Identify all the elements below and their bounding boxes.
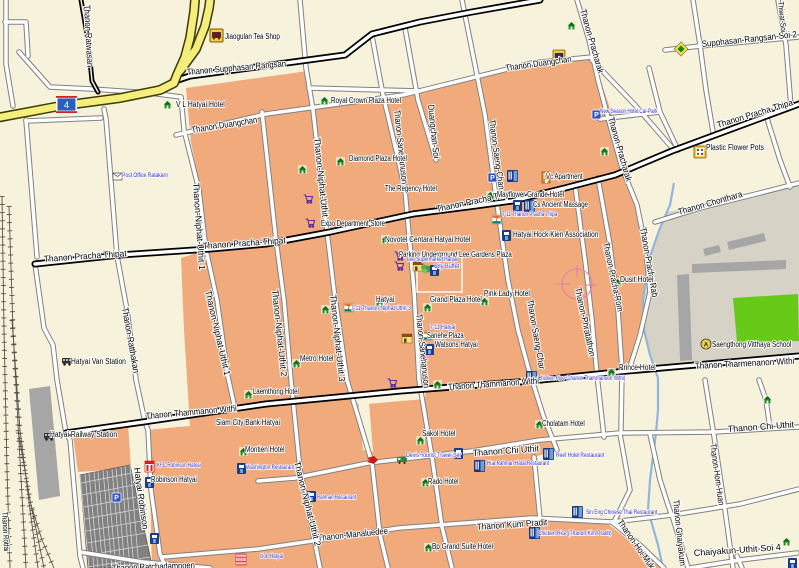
svg-text:City Buffet: City Buffet bbox=[434, 263, 459, 270]
svg-text:Sakol Hotel: Sakol Hotel bbox=[422, 429, 456, 438]
svg-text:4: 4 bbox=[64, 100, 69, 111]
svg-text:7: 7 bbox=[495, 217, 498, 223]
svg-text:Saengthong Vitthaya School: Saengthong Vitthaya School bbox=[712, 340, 791, 349]
svg-text:Hatyai: Hatyai bbox=[376, 295, 394, 304]
svg-text:Jiaogulan Tea Shop: Jiaogulan Tea Shop bbox=[225, 32, 280, 41]
svg-text:Hatyai Hock Kien Association: Hatyai Hock Kien Association bbox=[513, 230, 598, 239]
svg-text:7-11 Thanon Niphat Uthit 3: 7-11 Thanon Niphat Uthit 3 bbox=[351, 305, 411, 312]
svg-text:Bp Grand Suite Hotel: Bp Grand Suite Hotel bbox=[432, 542, 493, 551]
svg-text:Lee Supermarket Hatyai: Lee Supermarket Hatyai bbox=[407, 256, 458, 263]
svg-text:Hua Rahman Hatal Restaurant: Hua Rahman Hatal Restaurant bbox=[487, 460, 549, 467]
svg-text:Cs Ancient Massage: Cs Ancient Massage bbox=[533, 200, 588, 209]
svg-text:Rahman Restaurant: Rahman Restaurant bbox=[317, 494, 356, 501]
svg-text:Montien Hotel: Montien Hotel bbox=[245, 445, 285, 454]
svg-text:Grand Plaza Hotel: Grand Plaza Hotel bbox=[430, 295, 482, 304]
svg-text:Rado Hotel: Rado Hotel bbox=[428, 477, 459, 486]
svg-text:The Regency Hotel: The Regency Hotel bbox=[385, 184, 437, 193]
svg-text:Chicken Rice (Thanon Kim Pradi: Chicken Rice (Thanon Kim Pradit) bbox=[538, 530, 612, 537]
svg-text:KFC Robinson Hatyai: KFC Robinson Hatyai bbox=[157, 462, 201, 469]
svg-text:Cholatam Hotel: Cholatam Hotel bbox=[542, 419, 585, 428]
svg-text:Mayflower Grande Hotel: Mayflower Grande Hotel bbox=[497, 190, 564, 199]
svg-text:Pink Lady Hotel: Pink Lady Hotel bbox=[484, 289, 530, 298]
svg-text:P: P bbox=[594, 112, 599, 119]
svg-text:7-11 Hatyai: 7-11 Hatyai bbox=[430, 324, 455, 331]
svg-text:Robinson Hatyai: Robinson Hatyai bbox=[151, 475, 197, 484]
svg-text:Metro Hotel: Metro Hotel bbox=[300, 354, 334, 363]
svg-text:Uob Hatyai: Uob Hatyai bbox=[260, 553, 283, 560]
svg-text:Dusit Hotel: Dusit Hotel bbox=[620, 275, 654, 284]
svg-text:New Season Hotel Car Park: New Season Hotel Car Park bbox=[600, 108, 658, 115]
svg-text:7-11 Thanon Pracha Thipa: 7-11 Thanon Pracha Thipa bbox=[502, 211, 557, 218]
svg-text:A: A bbox=[704, 343, 709, 349]
svg-text:Vc Apartment: Vc Apartment bbox=[546, 172, 583, 181]
svg-text:Watsons Hatyai: Watsons Hatyai bbox=[435, 340, 478, 349]
svg-text:Sin Eng Chinese Thai Restauran: Sin Eng Chinese Thai Restaurant bbox=[586, 509, 657, 516]
svg-text:Post Office Ratakarn: Post Office Ratakarn bbox=[122, 172, 168, 179]
svg-text:P: P bbox=[490, 175, 495, 182]
svg-text:Sanehe Plaza: Sanehe Plaza bbox=[427, 331, 464, 340]
svg-text:Laemthong Hotel: Laemthong Hotel bbox=[253, 387, 299, 396]
svg-text:V L Hatyai Hotel: V L Hatyai Hotel bbox=[176, 100, 225, 109]
svg-text:Prince Hotel: Prince Hotel bbox=[619, 363, 656, 372]
svg-text:Royal Crown Plaza Hotel: Royal Crown Plaza Hotel bbox=[331, 96, 401, 105]
svg-text:Reef Hotel Restaurant: Reef Hotel Restaurant bbox=[556, 452, 604, 459]
svg-text:Expo Department Store: Expo Department Store bbox=[321, 219, 385, 228]
svg-text:Siam City Bank Hatyai: Siam City Bank Hatyai bbox=[216, 418, 280, 427]
svg-text:Washington Restaurant: Washington Restaurant bbox=[246, 464, 294, 471]
svg-text:Chicken Rice (Thanon Thammanoo: Chicken Rice (Thanon Thammanoon Withi) bbox=[538, 375, 625, 382]
svg-text:Hatyai Van Station: Hatyai Van Station bbox=[71, 357, 126, 366]
svg-text:Plastic Flower Pots: Plastic Flower Pots bbox=[706, 143, 764, 152]
svg-text:Devis Tourist Travel Ser: Devis Tourist Travel Ser bbox=[406, 452, 462, 459]
svg-text:Diamond Plaza Hotel: Diamond Plaza Hotel bbox=[349, 154, 407, 163]
svg-text:Novotel Centara Hatyai Hotel: Novotel Centara Hatyai Hotel bbox=[385, 235, 471, 244]
svg-text:7: 7 bbox=[347, 305, 350, 311]
svg-text:P: P bbox=[114, 495, 119, 502]
svg-text:Hatyai Railway Station: Hatyai Railway Station bbox=[50, 430, 117, 439]
